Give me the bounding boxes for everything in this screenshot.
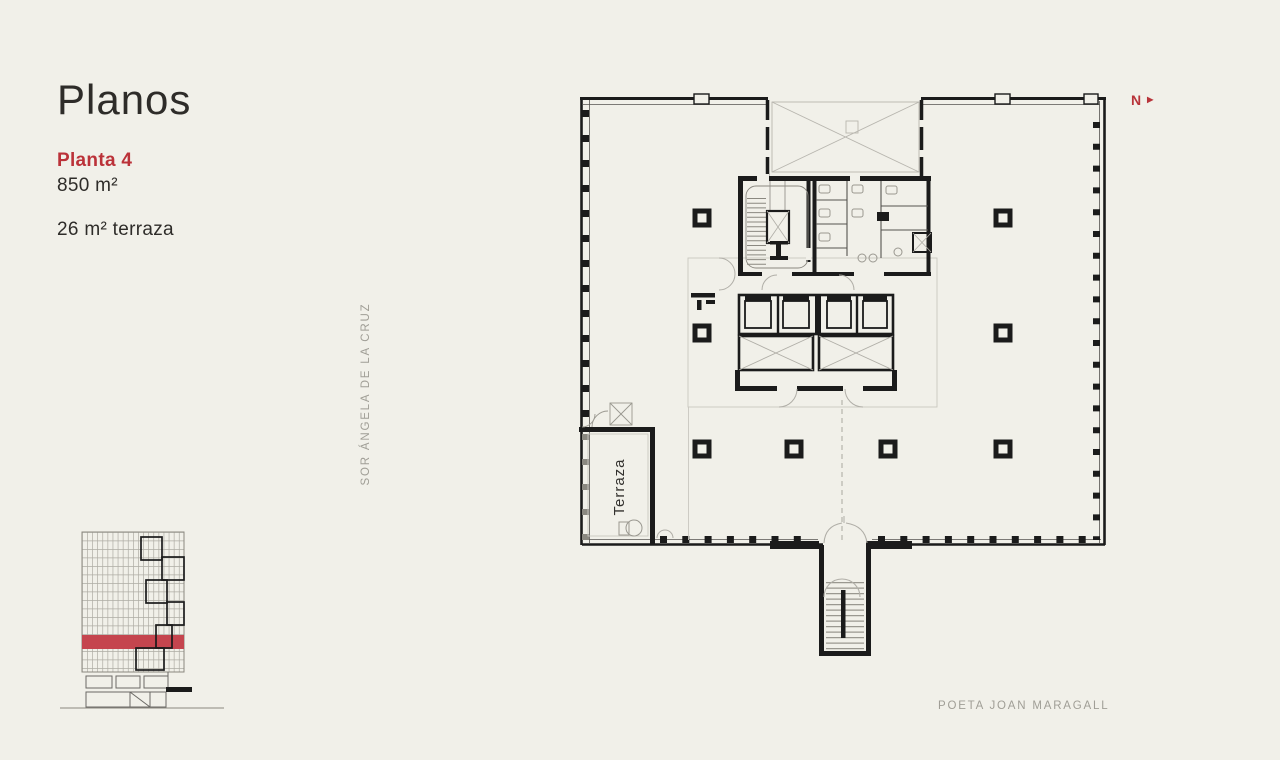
- floor-plan: Terraza: [570, 85, 1115, 670]
- elevator-bank: [739, 295, 893, 334]
- core-lobby: [735, 370, 897, 407]
- highlighted-floor-band: [82, 635, 184, 649]
- void-skylight: [772, 102, 919, 172]
- street-label-west: SOR ÁNGELA DE LA CRUZ: [360, 303, 372, 486]
- perimeter-walls: [580, 97, 1106, 545]
- wall-segment: [866, 541, 912, 549]
- north-indicator: N ▶: [1131, 92, 1154, 108]
- page-title: Planos: [57, 76, 191, 124]
- north-arrow-icon: ▶: [1147, 96, 1154, 104]
- restrooms: [816, 181, 931, 262]
- building-elevation-icon: [58, 530, 226, 716]
- stairwell: [746, 181, 811, 268]
- service-core: [691, 174, 931, 407]
- terrace-room: Terraza: [579, 427, 673, 545]
- void-wall-window-gaps: [765, 120, 925, 157]
- title-block: Planos Planta 4 850 m² 26 m² terraza: [57, 76, 191, 241]
- floor-area: 850 m²: [57, 175, 191, 197]
- floor-label: Planta 4: [57, 150, 191, 172]
- wall-segment: [770, 541, 819, 549]
- entrance-canopy: [166, 687, 192, 692]
- reference-grid: [688, 258, 937, 540]
- street-label-south: POETA JOAN MARAGALL: [938, 700, 1109, 712]
- ground-floor: [86, 672, 168, 707]
- machine-rooms: [739, 336, 893, 370]
- duct-glyph: [691, 293, 715, 310]
- plans-page: { "page": { "title": "Planos" }, "floor"…: [0, 0, 1280, 760]
- exit-stair: [822, 516, 869, 654]
- terrace-area: 26 m² terraza: [57, 219, 191, 241]
- terrace-room-label: Terraza: [611, 458, 628, 515]
- north-label: N: [1131, 92, 1142, 108]
